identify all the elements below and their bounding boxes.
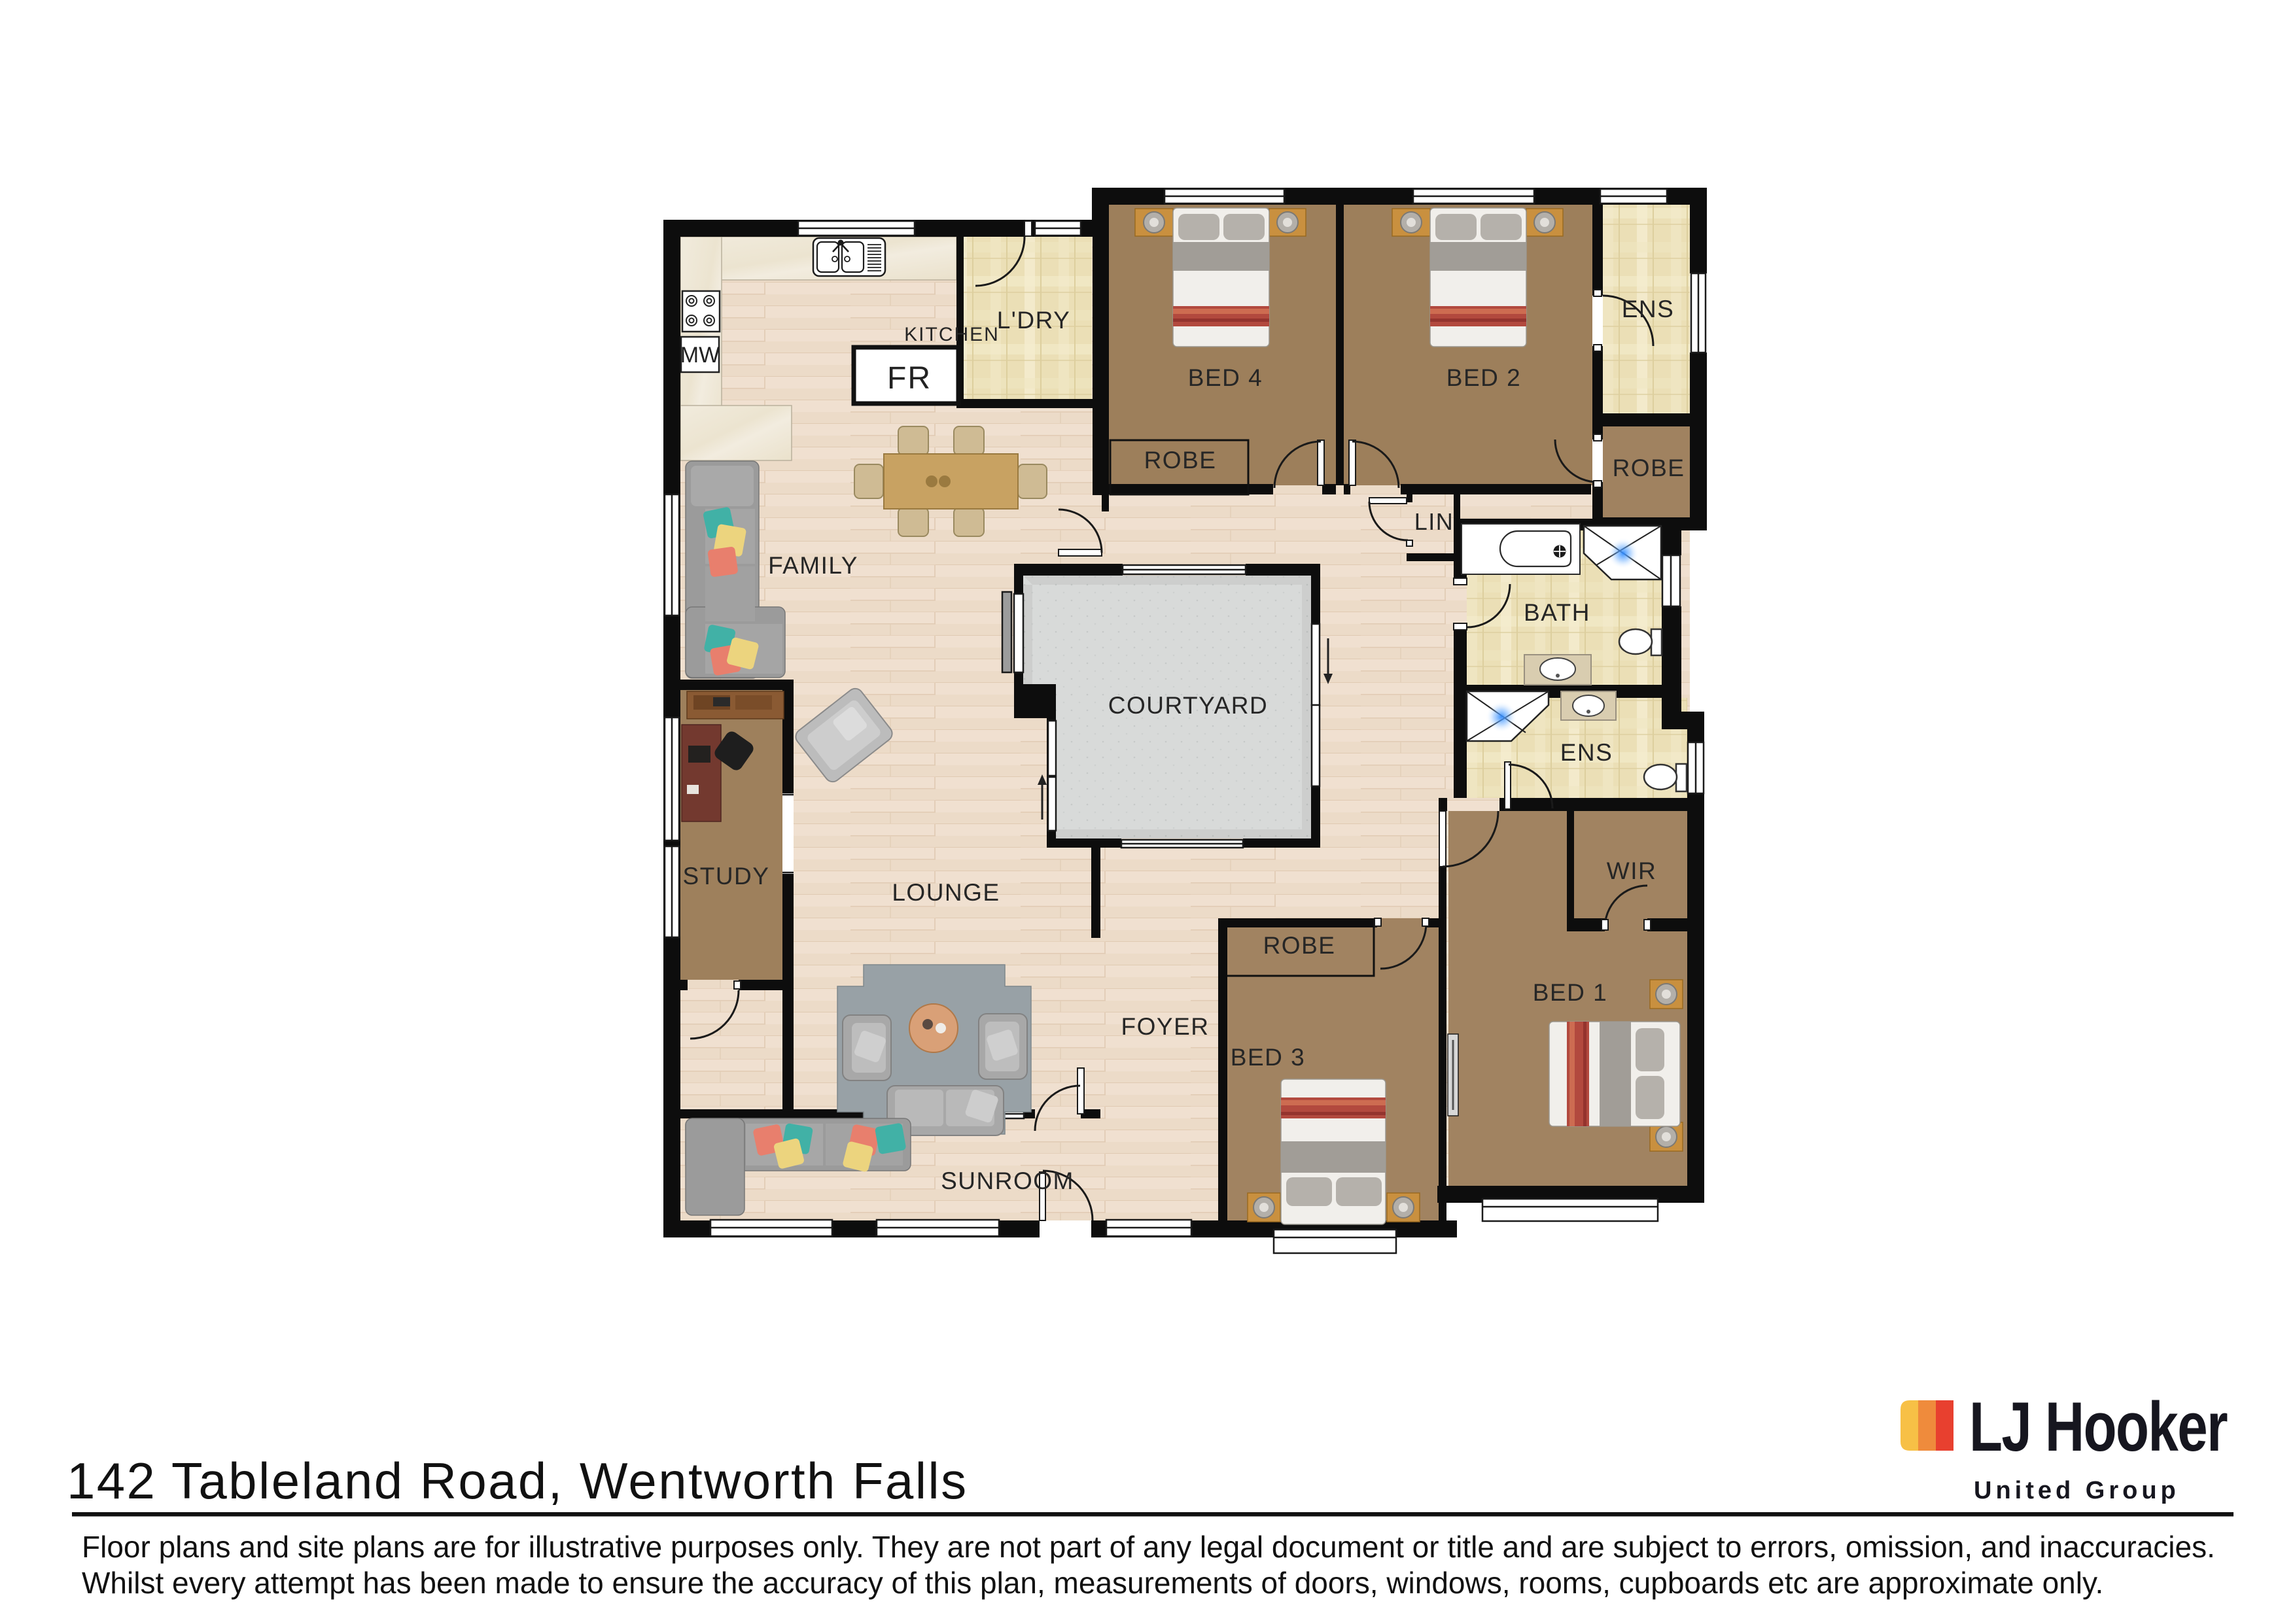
svg-text:ENS: ENS xyxy=(1622,296,1675,322)
svg-text:BED 3: BED 3 xyxy=(1231,1044,1305,1071)
svg-text:ENS: ENS xyxy=(1560,739,1613,766)
svg-text:Whilst every attempt has been: Whilst every attempt has been made to en… xyxy=(82,1566,2103,1600)
svg-text:LIN: LIN xyxy=(1414,508,1454,535)
svg-text:BED 4: BED 4 xyxy=(1188,364,1263,391)
svg-text:FOYER: FOYER xyxy=(1121,1013,1210,1040)
svg-text:ROBE: ROBE xyxy=(1144,447,1217,474)
svg-text:SUNROOM: SUNROOM xyxy=(941,1167,1074,1194)
svg-text:LJ Hooker: LJ Hooker xyxy=(1969,1388,2227,1466)
svg-text:BED 2: BED 2 xyxy=(1446,364,1521,391)
svg-text:142 Tableland Road, Wentworth: 142 Tableland Road, Wentworth Falls xyxy=(67,1452,968,1510)
svg-text:BATH: BATH xyxy=(1524,599,1590,626)
svg-text:ROBE: ROBE xyxy=(1263,932,1336,959)
svg-text:United Group: United Group xyxy=(1974,1477,2180,1504)
svg-text:L'DRY: L'DRY xyxy=(997,307,1071,334)
svg-text:BED 1: BED 1 xyxy=(1533,979,1607,1006)
svg-text:KITCHEN: KITCHEN xyxy=(904,324,1000,345)
svg-text:ROBE: ROBE xyxy=(1613,455,1685,481)
svg-text:WIR: WIR xyxy=(1607,857,1656,884)
svg-text:Floor plans and site plans are: Floor plans and site plans are for illus… xyxy=(82,1530,2215,1564)
svg-text:FAMILY: FAMILY xyxy=(768,552,858,579)
svg-text:FR: FR xyxy=(887,361,932,396)
svg-text:MW: MW xyxy=(680,343,720,368)
svg-text:COURTYARD: COURTYARD xyxy=(1108,692,1268,719)
svg-text:STUDY: STUDY xyxy=(683,863,770,890)
svg-text:LOUNGE: LOUNGE xyxy=(892,879,1000,906)
